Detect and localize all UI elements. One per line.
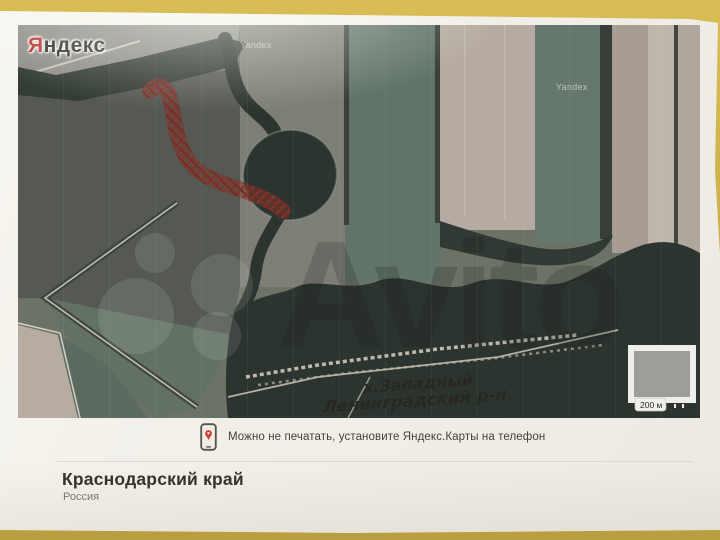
yandex-logo: Яндекс (28, 34, 106, 58)
strip-pale (440, 25, 535, 230)
map-canvas: Avito 200 м Яндекс (18, 25, 700, 418)
paper-sheet: Avito 200 м Яндекс (0, 0, 720, 540)
scale-label: 200 м (640, 400, 663, 410)
divider (57, 461, 693, 462)
location-country: Россия (63, 491, 99, 503)
strip-tan-light (648, 25, 674, 257)
qr-placeholder (628, 345, 696, 403)
yandex-tile-watermark: Yandex (556, 82, 588, 92)
tree-line (600, 25, 612, 239)
print-note-text: Можно не печатать, установите Яндекс.Кар… (228, 431, 545, 443)
location-title: Краснодарский край (62, 469, 244, 490)
photo-of-printed-map: Avito 200 м Яндекс (0, 0, 720, 540)
strip-tan-2 (678, 25, 700, 263)
satellite-imagery: Avito 200 м (18, 25, 700, 418)
yandex-tile-watermark: Yandex (240, 40, 272, 50)
avito-watermark-text: Avito (276, 210, 621, 380)
phone-pin-icon (200, 423, 217, 451)
print-note: Можно не печатать, установите Яндекс.Кар… (200, 423, 545, 451)
yandex-logo-rest: ндекс (44, 34, 106, 57)
yandex-logo-initial: Я (28, 34, 44, 57)
